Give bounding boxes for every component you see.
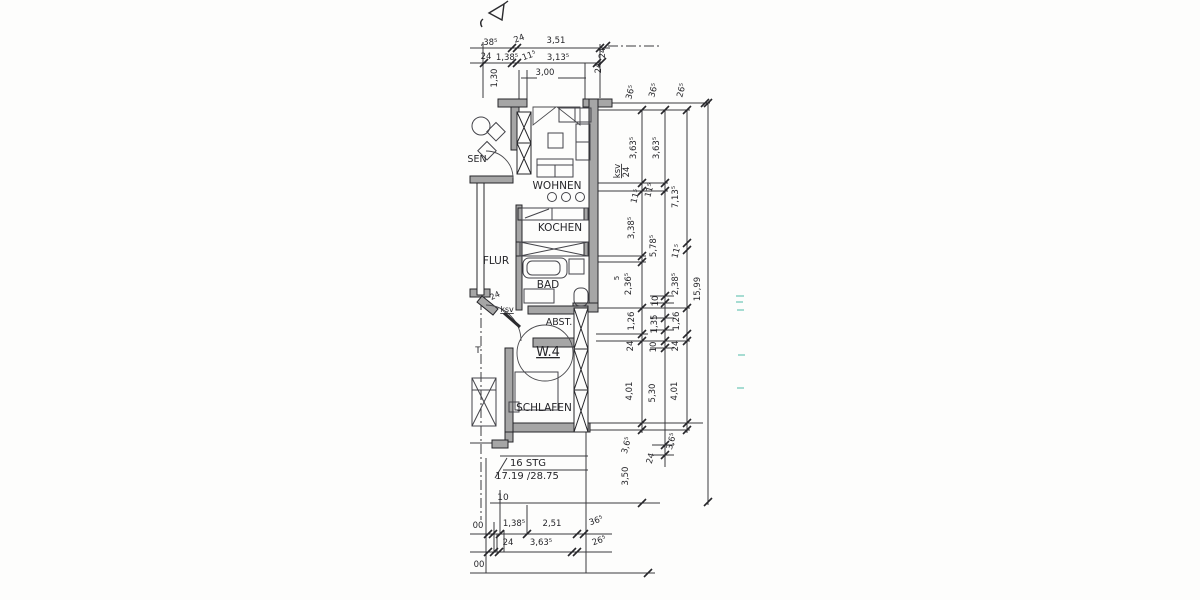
dim-label: 3,13⁵: [547, 53, 569, 63]
room-label-essen-partial: SEN: [467, 154, 486, 165]
dim-label: 36⁵: [588, 514, 605, 528]
dim-label: 3,00: [536, 68, 555, 78]
wall: [516, 205, 522, 310]
sink: [569, 259, 584, 274]
material-note-ksv: ksv: [500, 305, 514, 314]
apartment-number: W.4: [536, 345, 560, 360]
dining-seat: [548, 193, 557, 202]
dim-label: 00: [474, 560, 485, 570]
dining-seat: [576, 193, 585, 202]
dim-label: 26⁵: [675, 82, 688, 98]
dim-label: 36⁵: [647, 82, 660, 98]
room-label-abstellraum: ABST.: [546, 317, 573, 328]
dim-label: 10: [651, 296, 661, 307]
dim-label: 5: [613, 276, 621, 280]
dim-label: 3,63⁵: [530, 538, 552, 548]
stair-note-riser-tread: 17.19 /28.75: [495, 471, 559, 482]
dim-label: 10: [649, 342, 659, 353]
dim-label: 1,38⁵: [503, 519, 525, 529]
dim-label: 7,13⁵: [671, 186, 681, 208]
scanned-floor-plan-page: SENWOHNENKOCHENFLURBADABST.W.4SCHLAFEN24…: [0, 0, 1200, 600]
stair-note-steps: 16 STG: [510, 458, 546, 469]
dim-label: 24: [622, 167, 632, 178]
dim-label: 4,01: [670, 382, 680, 401]
dim-label: 4,01: [625, 382, 635, 401]
room-label-kochen: KOCHEN: [538, 222, 582, 234]
top-dimension-labels: ,38⁵243,5124241,38⁵11⁵3,13⁵241,303,00: [481, 33, 608, 88]
dim-label: 36⁵: [624, 84, 637, 100]
pier-cross-lines: [472, 378, 496, 426]
centerlines: [481, 46, 662, 520]
dim-label: 26⁵: [591, 534, 608, 548]
dim-label: 24: [513, 33, 527, 46]
kitchen-counter-diagonal: [525, 209, 549, 218]
dim-label: 5,30: [648, 384, 658, 403]
dim-label: 3,51: [547, 36, 566, 46]
coffee-table: [548, 133, 563, 148]
kitchen-unit-cross: [520, 242, 588, 256]
dim-label: 24: [594, 63, 604, 74]
dim-label: 00: [473, 521, 484, 531]
bottom-dimension-labels: 001,38⁵2,5136⁵243,63⁵26⁵00: [473, 514, 608, 570]
dim-label: 11⁵: [643, 182, 656, 198]
dim-label: 1,30: [490, 69, 500, 88]
wall: [505, 348, 513, 432]
right-dimension-labels: 36⁵36⁵26⁵3,63⁵3,63⁵ksv2411⁵11⁵7,13⁵3,38⁵…: [613, 82, 703, 485]
dim-label: 3,38⁵: [627, 217, 637, 239]
dim-label: 24: [645, 452, 657, 465]
bathtub-inner: [527, 261, 560, 275]
dim-label: 3,63⁵: [629, 137, 639, 159]
dim-label: 3,50: [621, 467, 631, 486]
dim-label: 24: [671, 341, 681, 352]
door-swing-arc: [486, 151, 513, 178]
dim-label: 11⁵: [521, 49, 538, 63]
dim-label: 24: [503, 538, 514, 548]
dim-label: 2,38⁵: [671, 273, 681, 295]
room-label-wohnen: WOHNEN: [533, 180, 582, 192]
dim-label: 3,6⁵: [665, 432, 679, 451]
counter-cap: [518, 208, 522, 220]
room-label-bad: BAD: [537, 279, 559, 291]
dim-label: 2,51: [543, 519, 562, 529]
counter-cap: [584, 242, 588, 256]
room-labels: SENWOHNENKOCHENFLURBADABST.W.4SCHLAFEN24…: [467, 154, 582, 503]
dim-label: 1,26: [627, 312, 637, 331]
dim-label: 1,35: [650, 315, 660, 334]
wall: [470, 176, 513, 183]
partial-label: T: [474, 346, 481, 356]
dim-label: 24: [626, 341, 636, 352]
dim-label: 15,99: [693, 277, 703, 301]
vanity: [524, 289, 554, 303]
dim-label: ,38⁵: [481, 38, 498, 48]
dim-label: 1,38⁵: [496, 53, 518, 63]
floor-plan-drawing: SENWOHNENKOCHENFLURBADABST.W.4SCHLAFEN24…: [0, 0, 1200, 600]
light-walls-and-shafts: [477, 112, 588, 432]
dim-label: 24: [598, 48, 608, 59]
stamp-marks: [736, 296, 745, 388]
door-leaf-triangle: [533, 107, 556, 125]
shelf: [576, 142, 590, 160]
room-label-schlafen: SCHLAFEN: [516, 402, 572, 414]
kitchen-counter: [522, 208, 588, 220]
room-label-flur: FLUR: [483, 255, 509, 267]
counter-cap: [516, 242, 520, 256]
wall: [492, 440, 508, 448]
dim-label: 10: [497, 493, 509, 503]
wall-flur-left: [477, 183, 484, 295]
dim-label: 24: [481, 52, 492, 62]
dim-label: 5,78⁵: [649, 235, 659, 257]
dim-label: 11⁵: [670, 243, 683, 259]
dining-seat: [562, 193, 571, 202]
door-leaf: [504, 313, 520, 327]
dim-label: 3,63⁵: [652, 137, 662, 159]
dim-label: 3,6⁵: [620, 436, 634, 455]
shelf: [576, 124, 590, 142]
dim-label: 1,26: [672, 312, 682, 331]
wall: [498, 99, 527, 107]
dim-label: 2,36⁵: [624, 273, 634, 295]
section-arrow-icon: [481, 1, 508, 27]
